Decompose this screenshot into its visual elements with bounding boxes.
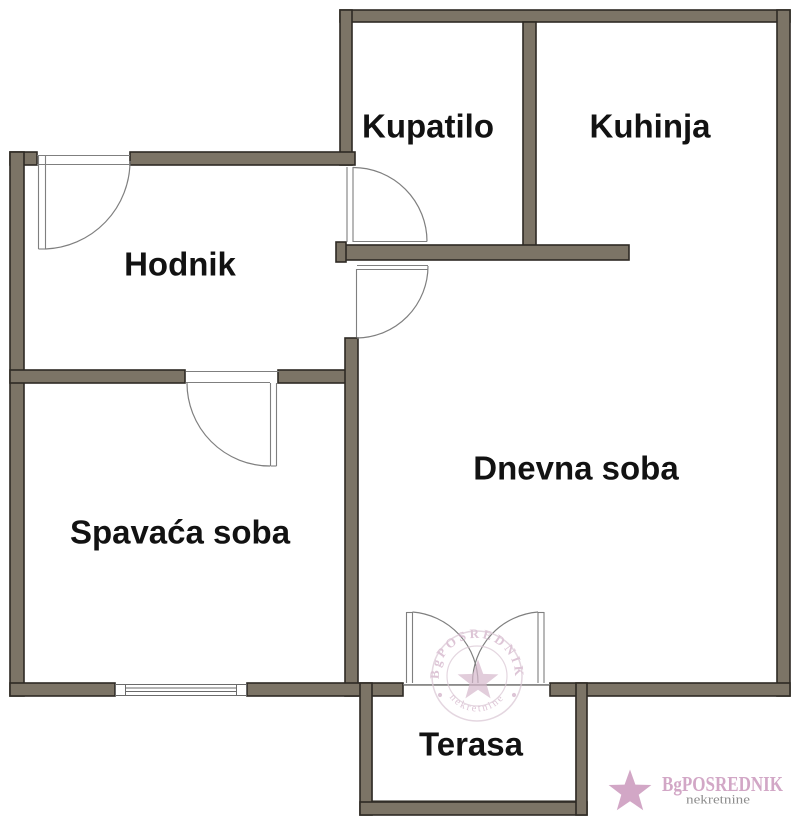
wall-top-wall bbox=[340, 10, 790, 22]
window-symbol bbox=[116, 685, 247, 696]
wall-hodnik-top-wall-right bbox=[130, 152, 355, 165]
wall-bottom-wall-left bbox=[10, 683, 115, 696]
wall-spavaca-top-wall-left bbox=[10, 370, 185, 383]
wall-terrace-wall-right bbox=[576, 683, 587, 815]
wall-below-kupatilo-wall bbox=[337, 245, 629, 260]
watermark-dot bbox=[438, 693, 442, 697]
room-label-hodnik: Hodnik bbox=[124, 246, 236, 283]
wall-below-kupatilo-cap bbox=[336, 242, 346, 262]
wall-bottom-wall-mid bbox=[247, 683, 403, 696]
floorplan-drawing: BgPOSREDNIKnekretnineKupatiloKuhinjaHodn… bbox=[0, 0, 800, 827]
wall-spavaca-top-wall-right bbox=[278, 370, 355, 383]
wall-left-wall bbox=[10, 152, 24, 696]
room-label-kuhinja: Kuhinja bbox=[590, 108, 712, 145]
room-label-dnevna-soba: Dnevna soba bbox=[473, 450, 679, 487]
wall-terrace-wall-bottom bbox=[360, 802, 587, 815]
wall-upper-left-wall bbox=[340, 10, 352, 165]
wall-right-wall bbox=[777, 10, 790, 696]
wall-spavaca-dnevna-wall bbox=[345, 338, 358, 696]
wall-kupatilo-kuhinja-wall bbox=[523, 22, 536, 247]
room-label-spava-a-soba: Spavaća soba bbox=[70, 514, 291, 551]
floorplan-page: BgPOSREDNIKnekretnineKupatiloKuhinjaHodn… bbox=[0, 0, 800, 827]
wall-terrace-wall-left bbox=[360, 683, 372, 815]
room-label-terasa: Terasa bbox=[419, 726, 524, 763]
watermark-dot bbox=[512, 693, 516, 697]
room-label-kupatilo: Kupatilo bbox=[362, 108, 494, 145]
logo-tagline-text: nekretnine bbox=[686, 792, 750, 807]
window-frame bbox=[116, 685, 247, 696]
